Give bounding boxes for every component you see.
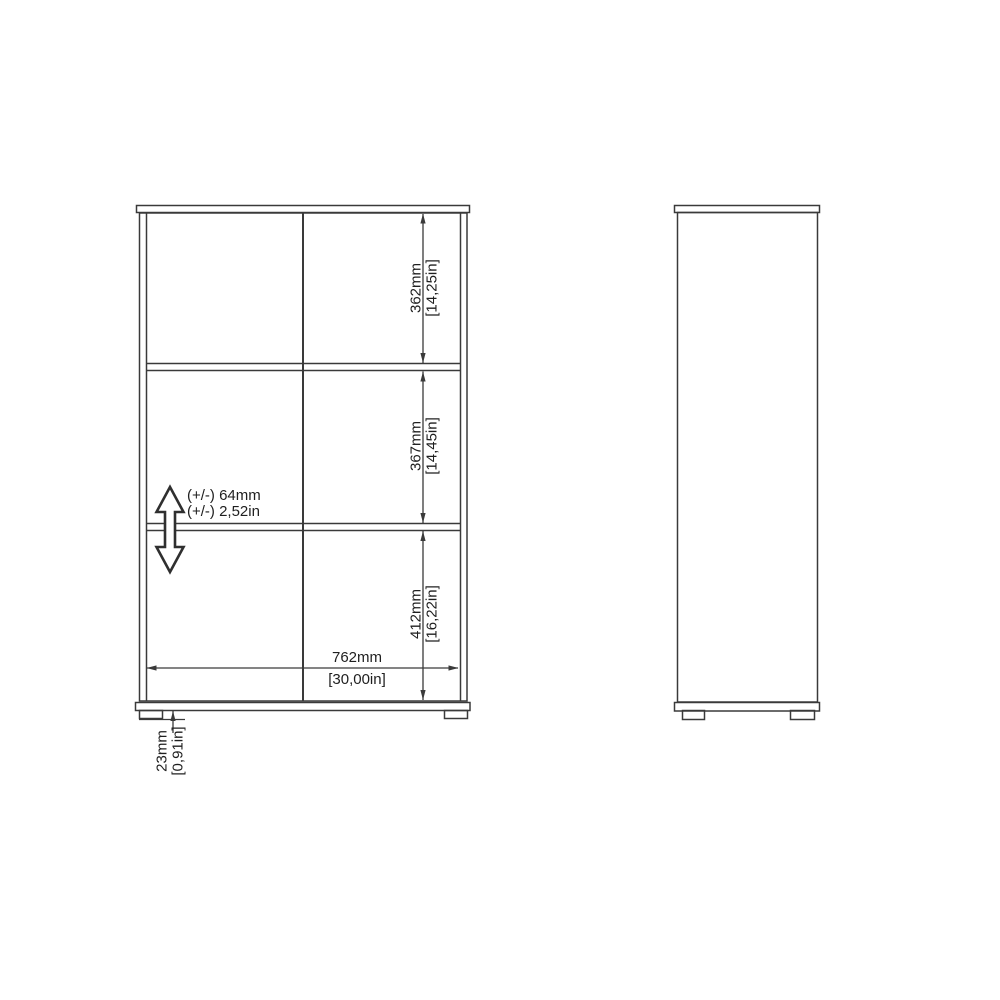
side-body-panel [678,213,818,703]
side-base-plinth [675,703,820,712]
arrowhead-icon [420,372,425,382]
double-headed-arrow-shape [157,487,184,572]
dimension-mm-value: 412mm [409,585,425,643]
dimension-label-bottom-section: 412mm [16,22in] [409,585,440,643]
dimension-mm-value: 367mm [409,417,425,475]
arrowhead-icon [420,690,425,700]
dimension-label-middle-section: 367mm [14,45in] [409,417,440,475]
side-view [675,206,820,720]
front-base-plinth [136,703,471,711]
arrowhead-icon [420,214,425,224]
side-top-board [675,206,820,213]
arrowhead-icon [147,665,157,670]
dimension-inch-value: [30,00in] [328,669,386,691]
dimension-label-foot-height: 23mm [0,91in] [155,726,186,775]
arrowhead-icon [420,353,425,363]
dimension-inch-value: [16,22in] [424,585,440,643]
dimension-inch-value: [14,45in] [424,417,440,475]
dimension-inch-value: [0,91in] [170,726,186,775]
drawing-svg [0,0,1000,1000]
adjustable-shelf-arrow-icon [157,487,184,572]
dimension-mm-value: 362mm [409,259,425,317]
side-front-foot [683,711,705,720]
dimension-inch-value: [14,25in] [424,259,440,317]
adjustability-inch-value: (+/-) 2,52in [187,504,261,520]
side-back-foot [791,711,815,720]
front-left-foot [140,711,163,719]
arrowhead-icon [449,665,459,670]
front-top-board [137,206,470,213]
adjustability-mm-value: (+/-) 64mm [187,488,261,504]
front-right-foot [445,711,468,719]
dimension-mm-value: 762mm [328,647,386,669]
dimension-label-top-section: 362mm [14,25in] [409,259,440,317]
arrowhead-icon [420,531,425,541]
dimension-label-overall-width: 762mm [30,00in] [328,647,386,691]
arrowhead-icon [420,513,425,523]
shelf-adjustability-note: (+/-) 64mm (+/-) 2,52in [187,488,261,520]
technical-drawing-canvas: 362mm [14,25in] 367mm [14,45in] 412mm [1… [0,0,1000,1000]
dimension-mm-value: 23mm [155,726,171,775]
